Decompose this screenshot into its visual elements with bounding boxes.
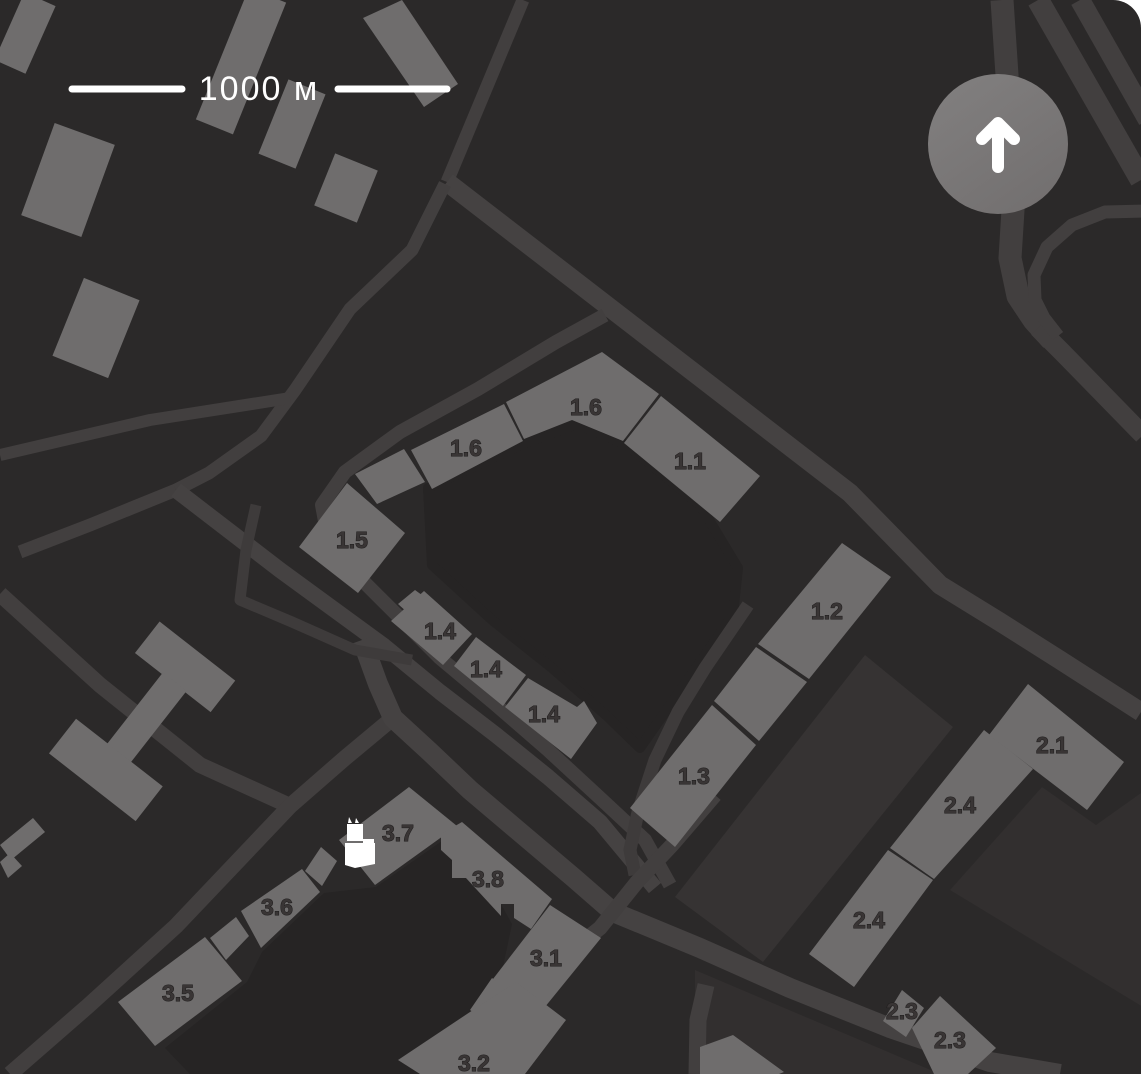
svg-text:1.4: 1.4 [424,618,456,644]
svg-text:3.6: 3.6 [261,894,293,920]
svg-text:2.3: 2.3 [886,998,918,1024]
svg-text:2.4: 2.4 [944,792,976,818]
svg-text:1.5: 1.5 [336,527,368,553]
svg-text:1.1: 1.1 [674,448,706,474]
svg-text:1.4: 1.4 [528,701,560,727]
svg-text:2.4: 2.4 [853,907,885,933]
svg-text:1.6: 1.6 [450,435,482,461]
svg-text:3.8: 3.8 [472,866,504,892]
svg-text:3.5: 3.5 [162,980,194,1006]
svg-text:3.7: 3.7 [382,820,414,846]
svg-text:2.3: 2.3 [934,1027,966,1053]
svg-text:1000 м: 1000 м [199,70,319,108]
svg-text:1.3: 1.3 [678,763,710,789]
svg-text:1.2: 1.2 [811,598,843,624]
svg-text:3.2: 3.2 [458,1050,490,1074]
svg-text:1.4: 1.4 [470,656,502,682]
svg-text:3.1: 3.1 [530,945,562,971]
svg-text:1.6: 1.6 [570,394,602,420]
svg-text:2.1: 2.1 [1036,732,1068,758]
